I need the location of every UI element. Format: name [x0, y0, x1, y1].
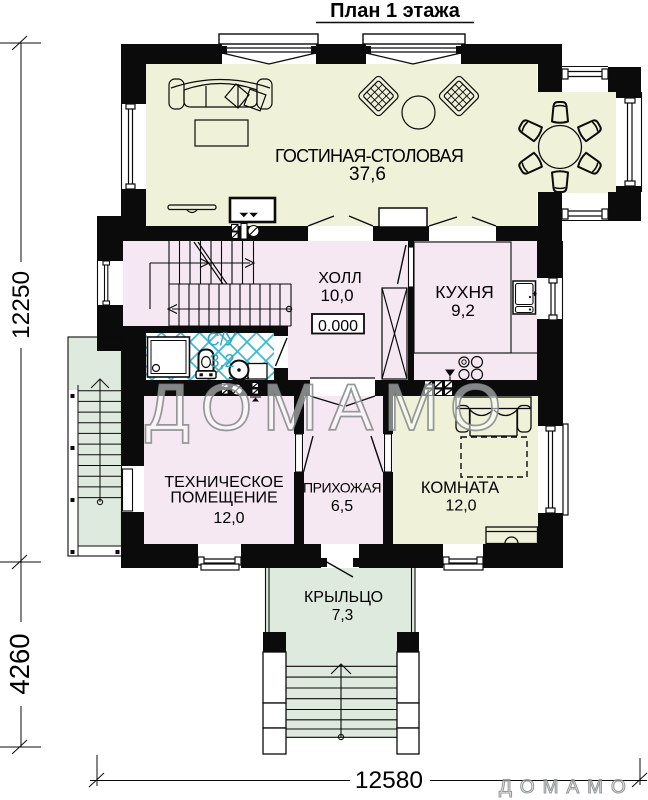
svg-text:ПОМЕЩЕНИЕ: ПОМЕЩЕНИЕ: [170, 490, 277, 507]
svg-text:10,0: 10,0: [320, 286, 353, 305]
svg-text:12580: 12580: [355, 767, 423, 794]
svg-text:6,5: 6,5: [331, 498, 353, 515]
svg-text:12,0: 12,0: [445, 498, 476, 515]
svg-text:С/У: С/У: [207, 330, 237, 350]
svg-text:КРЫЛЬЦО: КРЫЛЬЦО: [304, 589, 383, 606]
svg-text:3,2: 3,2: [209, 351, 234, 371]
svg-text:План 1 этажа: План 1 этажа: [330, 0, 461, 22]
svg-text:9,2: 9,2: [451, 301, 475, 320]
svg-text:37,6: 37,6: [349, 164, 386, 185]
svg-text:0.000: 0.000: [318, 318, 358, 335]
svg-text:12,0: 12,0: [213, 510, 244, 527]
svg-text:ДОМАМО: ДОМАМО: [145, 370, 512, 444]
svg-text:КУХНЯ: КУХНЯ: [435, 282, 493, 302]
svg-text:ДОМАМО: ДОМАМО: [499, 777, 634, 798]
svg-text:4260: 4260: [4, 633, 35, 694]
svg-text:12250: 12250: [8, 271, 35, 339]
svg-text:ГОСТИНАЯ-СТОЛОВАЯ: ГОСТИНАЯ-СТОЛОВАЯ: [275, 146, 463, 166]
svg-text:КОМНАТА: КОМНАТА: [421, 479, 499, 497]
svg-text:ХОЛЛ: ХОЛЛ: [318, 270, 361, 287]
svg-text:ТЕХНИЧЕСКОЕ: ТЕХНИЧЕСКОЕ: [164, 474, 283, 491]
svg-text:7,3: 7,3: [332, 607, 354, 624]
svg-text:ПРИХОЖАЯ: ПРИХОЖАЯ: [303, 480, 381, 496]
